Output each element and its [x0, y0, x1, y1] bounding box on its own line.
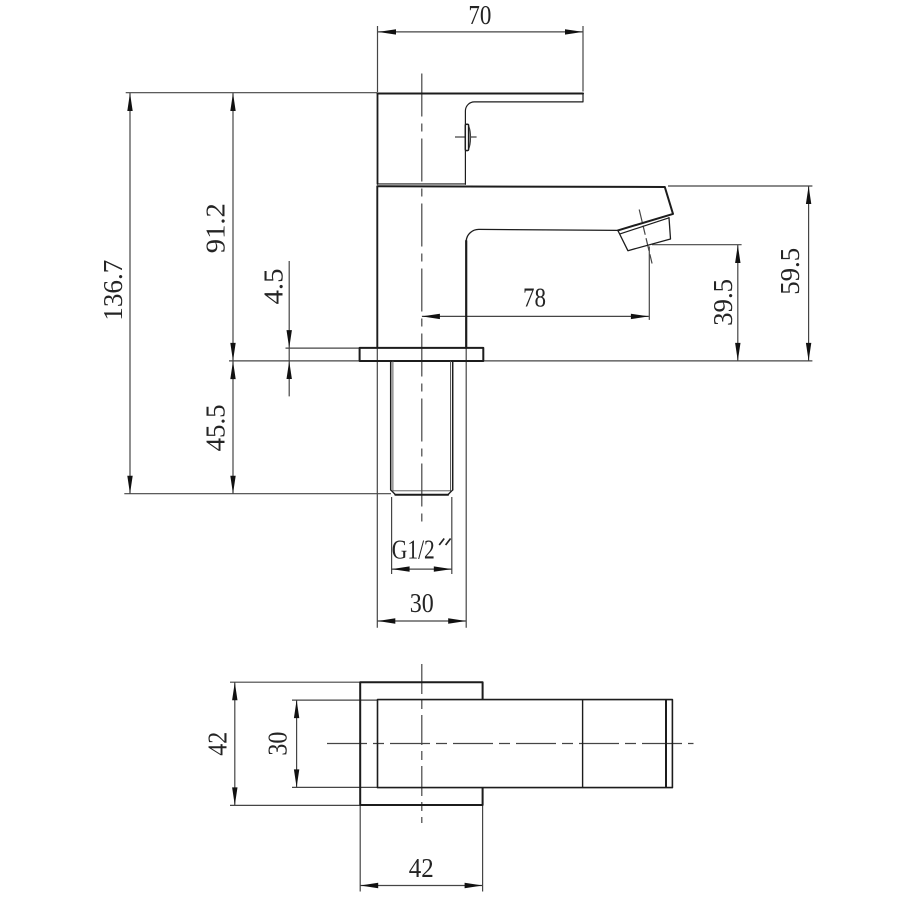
svg-text:42: 42: [203, 732, 233, 756]
svg-text:30: 30: [410, 588, 434, 618]
svg-text:136.7: 136.7: [98, 260, 128, 321]
svg-text:70: 70: [468, 0, 491, 30]
svg-text:4.5: 4.5: [259, 269, 289, 305]
svg-text:39.5: 39.5: [708, 279, 738, 326]
svg-text:42: 42: [409, 853, 434, 883]
svg-text:59.5: 59.5: [775, 248, 805, 295]
svg-text:G1/2: G1/2: [392, 535, 435, 565]
svg-text:91.2: 91.2: [201, 203, 231, 253]
svg-text:45.5: 45.5: [201, 404, 231, 451]
svg-text:30: 30: [262, 732, 292, 756]
svg-text:78: 78: [523, 283, 546, 313]
